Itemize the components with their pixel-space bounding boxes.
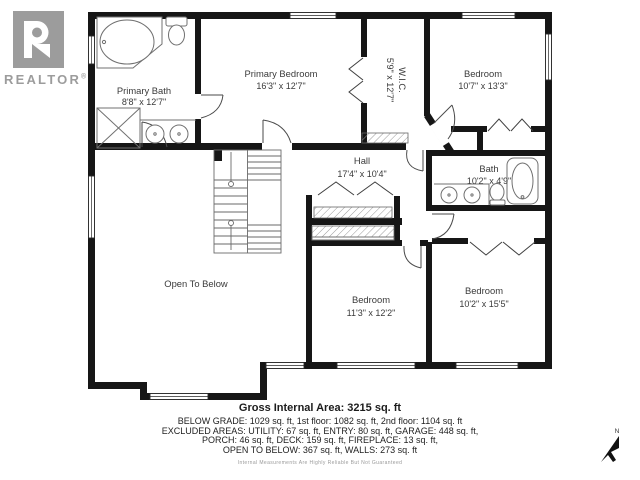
gross-internal-area: Gross Internal Area: 3215 sq. ft (0, 402, 640, 414)
floor-plan-page: Primary Bath 8'8" x 12'7" Primary Bedroo… (0, 0, 640, 480)
stair-treads-right (248, 156, 282, 249)
realtor-brand-text: REALTOR® (4, 72, 86, 87)
room-dims-bath: 10'2" x 4'9" (467, 176, 511, 186)
room-label-hall: Hall (354, 155, 370, 166)
room-dims-primary-bedroom: 16'3" x 12'7" (256, 81, 305, 91)
brand-word: REALTOR (4, 72, 81, 87)
realtor-logo-icon (13, 11, 64, 68)
toilet-icon (490, 184, 504, 201)
registered-mark: ® (81, 74, 86, 81)
room-label-primary-bedroom: Primary Bedroom (245, 68, 318, 79)
staircase (214, 150, 281, 253)
measurement-disclaimer: Internal Measurements Are Highly Reliabl… (0, 460, 640, 466)
room-label-bedroom-bottom-middle: Bedroom (352, 294, 390, 305)
footer-area-summary: Gross Internal Area: 3215 sq. ft BELOW G… (0, 402, 640, 466)
room-dims-bedroom-bottom-middle: 11'3" x 12'2" (347, 308, 396, 318)
room-dims-bedroom-bottom-right: 10'2" x 15'5" (459, 299, 508, 309)
room-label-open-to-below: Open To Below (164, 278, 228, 289)
area-line-4: OPEN TO BELOW: 367 sq. ft, WALLS: 273 sq… (0, 446, 640, 456)
interior-walls (88, 12, 552, 369)
room-dims-primary-bath: 8'8" x 12'7" (122, 97, 166, 107)
room-label-primary-bath: Primary Bath (117, 85, 171, 96)
room-label-bath: Bath (479, 163, 498, 174)
room-dims-wic: 5'9" x 12'7" (385, 58, 395, 102)
room-dims-hall: 17'4" x 10'4" (337, 169, 386, 179)
room-label-bedroom-top-right: Bedroom (464, 68, 502, 79)
room-label-wic: W.I.C. (397, 67, 408, 93)
primary-bath-fixtures (97, 17, 196, 148)
room-dims-bedroom-top-right: 10'7" x 13'3" (458, 81, 507, 91)
room-label-bedroom-bottom-right: Bedroom (465, 285, 503, 296)
